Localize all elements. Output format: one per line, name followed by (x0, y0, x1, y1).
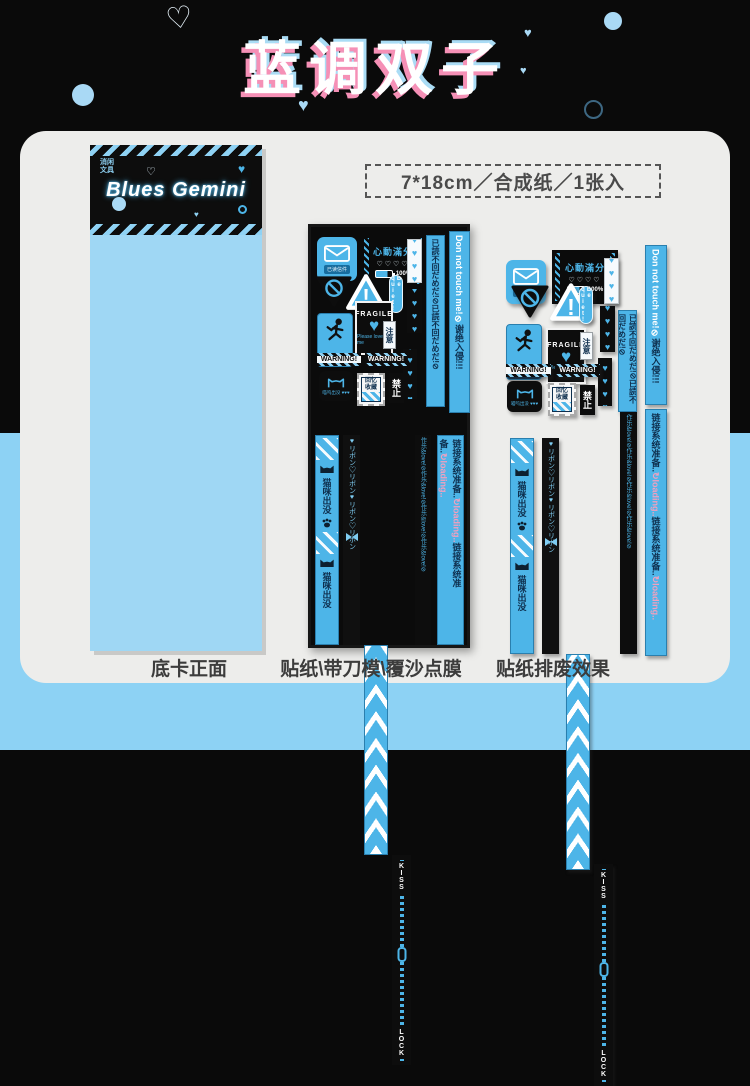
broken-heart-icon: ♥ (369, 319, 379, 333)
svg-text:!: ! (567, 294, 575, 320)
hearts-strip-white: ♥♥♥♥ (604, 258, 619, 304)
envelope-icon (513, 268, 539, 285)
cat-washi-strip: 猫咪出没 猫咪出没 (315, 435, 339, 645)
caption-sticker-sheet: 贴纸\带刀模\覆沙点膜 (271, 654, 471, 681)
intrude-text: 谢绝入侵!!! (454, 325, 464, 370)
stripe-block (362, 392, 380, 401)
bow-icon (345, 532, 359, 542)
broken-heart-icon: ♥ (561, 350, 571, 364)
no-entry-sticker (510, 284, 550, 320)
cat-icon (319, 558, 335, 568)
paw-icon (516, 521, 528, 531)
bookmark-body (90, 235, 262, 651)
cat-icon (515, 387, 535, 400)
stripe-block (316, 532, 338, 554)
text-washi-strip: 作乐&love!⊘作乐&love!⊘作乐&love!⊘作乐&love!⊘ (415, 435, 431, 645)
stripe-block (316, 438, 338, 460)
bookmark-header: 消闲 文具 Blues Gemini ♡ ♥ ♥ (90, 145, 262, 235)
spec-box: 7*18cm／合成纸／1张入 (365, 164, 661, 198)
zipper-washi-strip: KISS LOCK (392, 855, 411, 1065)
loading-washi-strip: 链接系统准备..↻loading..链接系统准备..↻loading.. (437, 435, 464, 645)
zipper-washi-strip: KISS LOCK (594, 864, 613, 1086)
no-entry-glyph: ⊘ (651, 329, 661, 339)
zipper-pull-icon (397, 947, 406, 962)
warning-banner-white: WARNING! (506, 364, 551, 377)
forbid-tag-sticker: 禁止 (389, 373, 404, 403)
falling-person-icon (324, 317, 346, 343)
be-quiet-sticker: Be quiet! (579, 286, 593, 324)
heart-icon: ♥ (238, 163, 245, 175)
text-washi-strip: 作乐&love!⊘作乐&love!⊘作乐&love!⊘作乐&love!⊘ (620, 412, 637, 654)
loading-washi-strip: 链接系统准备..↻loading..链接系统准备..↻loading.. (645, 409, 667, 656)
japanese-bar-sticker: 已読不回だめだ!⊘已読不回だめだ!⊘ (426, 235, 445, 407)
ribbon-washi-strip: ♥リボン♡リボン♥リボン♡リボン (542, 438, 559, 654)
warning-banner-white: WARNING! (317, 353, 361, 366)
envelope-icon (324, 245, 350, 262)
heart-icon: ♥ (194, 211, 199, 219)
stripe-block (553, 402, 571, 411)
falling-person-icon (513, 328, 535, 354)
stamp-sticker: 回忆收藏 (548, 383, 576, 416)
stamp-sticker: 回忆收藏 (357, 373, 385, 406)
hearts-row: ♡♡♡♡ (376, 260, 409, 268)
cat-icon (514, 561, 530, 571)
stripe-band (90, 145, 262, 156)
caption-diecut: 贴纸排废效果 (453, 654, 653, 681)
no-entry-glyph: ⊘ (454, 315, 464, 325)
warning-banner-black: WARNING! (365, 353, 407, 366)
cat-icon (319, 464, 335, 474)
dont-touch-bar-sticker: Don not touch me!⊘谢绝入侵!!! (645, 245, 667, 405)
japanese-bar-sticker: 已読不回だめだ!⊘已読不回だめだ!⊘ (618, 310, 637, 412)
bubble-icon (112, 197, 126, 211)
warning-banner-black: WARNING! (555, 364, 600, 377)
brand-logo: 消闲 文具 (100, 159, 114, 176)
cat-icon (326, 376, 346, 389)
hearts-strip-black: ♥♥♥♥♥ (598, 358, 612, 406)
chevron-washi-strip (566, 654, 590, 870)
hearts-strip-white: ♥♥♥♥ (407, 239, 422, 283)
dont-touch-text: Don not touch me! (454, 235, 464, 315)
paw-icon (321, 518, 333, 528)
spec-text: 7*18cm／合成纸／1张入 (401, 168, 625, 195)
bubble-outline-icon (238, 205, 247, 214)
bow-icon (544, 537, 558, 547)
ribbon-washi-strip: ♥リボン♡リボン♥リボン♡リボン (343, 435, 360, 645)
hearts-strip-black: ♥♥♥♥ (600, 306, 615, 352)
cat-sticker: 喵呜出没 ♥♥♥ (507, 381, 542, 412)
cat-icon (514, 467, 530, 477)
attention-tag-sticker: 注意 (383, 321, 396, 349)
page-title: 蓝调双子 (0, 22, 750, 106)
forbid-tag-sticker: 禁止 (580, 385, 595, 415)
heart-outline-icon: ♡ (146, 167, 156, 178)
hearts-strip-black: ♥♥♥♥ (407, 289, 422, 333)
caption-base-card: 底卡正面 (89, 654, 289, 681)
stripe-band (90, 224, 262, 235)
attention-tag-sticker: 注意 (580, 332, 593, 360)
cat-sticker: 喵呜出没 ♥♥♥ (319, 371, 353, 401)
cat-washi-strip: 猫咪出没 猫咪出没 (510, 438, 534, 654)
dont-touch-bar-sticker: Don not touch me!⊘谢绝入侵!!! (449, 231, 470, 413)
sticker-sheet: 已读信件 心動滿分 ♡♡♡♡ 100% ♥♥♥♥ ♥♥♥♥ 已読不回だめだ!⊘已… (308, 224, 470, 648)
zipper-pull-icon (599, 962, 608, 977)
bookmark-card: 消闲 文具 Blues Gemini ♡ ♥ ♥ (90, 145, 262, 651)
